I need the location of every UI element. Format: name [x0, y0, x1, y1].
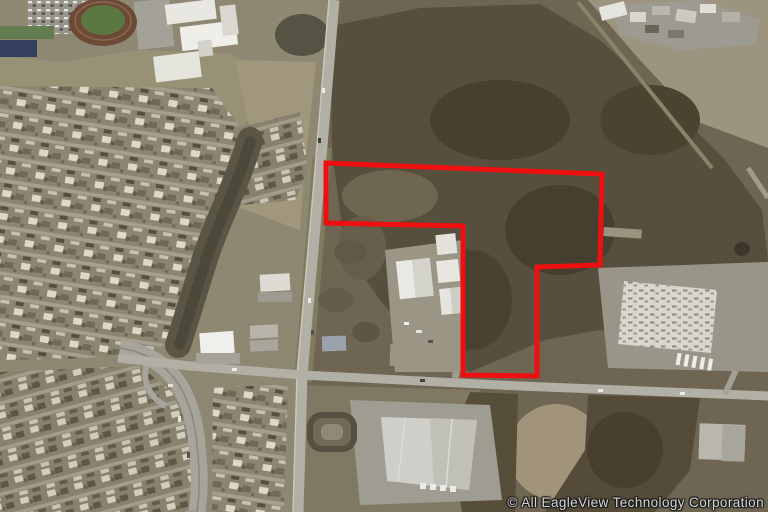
woods-dense-4: [600, 85, 700, 155]
aerial-photo-viewport: © All EagleView Technology Corporation: [0, 0, 768, 512]
truck: [404, 322, 409, 325]
notch-trees-2: [318, 288, 354, 312]
big-box-store: [199, 331, 234, 355]
building: [700, 4, 716, 13]
clearing-in-parcel: [342, 170, 438, 222]
notch-trees-3: [352, 322, 380, 342]
aerial-photo: [0, 0, 768, 512]
pond-right-water: [734, 242, 750, 256]
office-building: [260, 273, 291, 292]
gray-building-1: [250, 324, 279, 338]
big-box-parking: [196, 353, 240, 364]
gas-station: [322, 336, 347, 352]
green-courts: [0, 26, 54, 39]
warehouse-roof-shade: [430, 418, 477, 490]
woods-dense-1: [430, 80, 570, 160]
building-bottom-right-shade: [721, 425, 745, 462]
retention-pond: [310, 415, 354, 449]
blue-courts: [0, 40, 37, 57]
notch-trees-1: [334, 240, 366, 264]
building: [668, 30, 684, 38]
building: [630, 12, 646, 22]
football-field: [81, 5, 125, 35]
neighborhood-south-central: [212, 384, 288, 512]
tree-clump-west-of-road: [275, 14, 329, 56]
office-parking: [258, 292, 292, 302]
building: [652, 6, 670, 15]
trees-bottom-right-dense: [587, 412, 663, 488]
industrial-roof-vents: [618, 281, 717, 353]
gray-building-2: [250, 339, 279, 351]
building: [722, 12, 740, 22]
truck: [416, 330, 422, 333]
building: [645, 25, 659, 33]
copyright-watermark: © All EagleView Technology Corporation: [507, 495, 764, 510]
car: [428, 340, 433, 343]
neighborhood-southwest: [0, 366, 193, 512]
